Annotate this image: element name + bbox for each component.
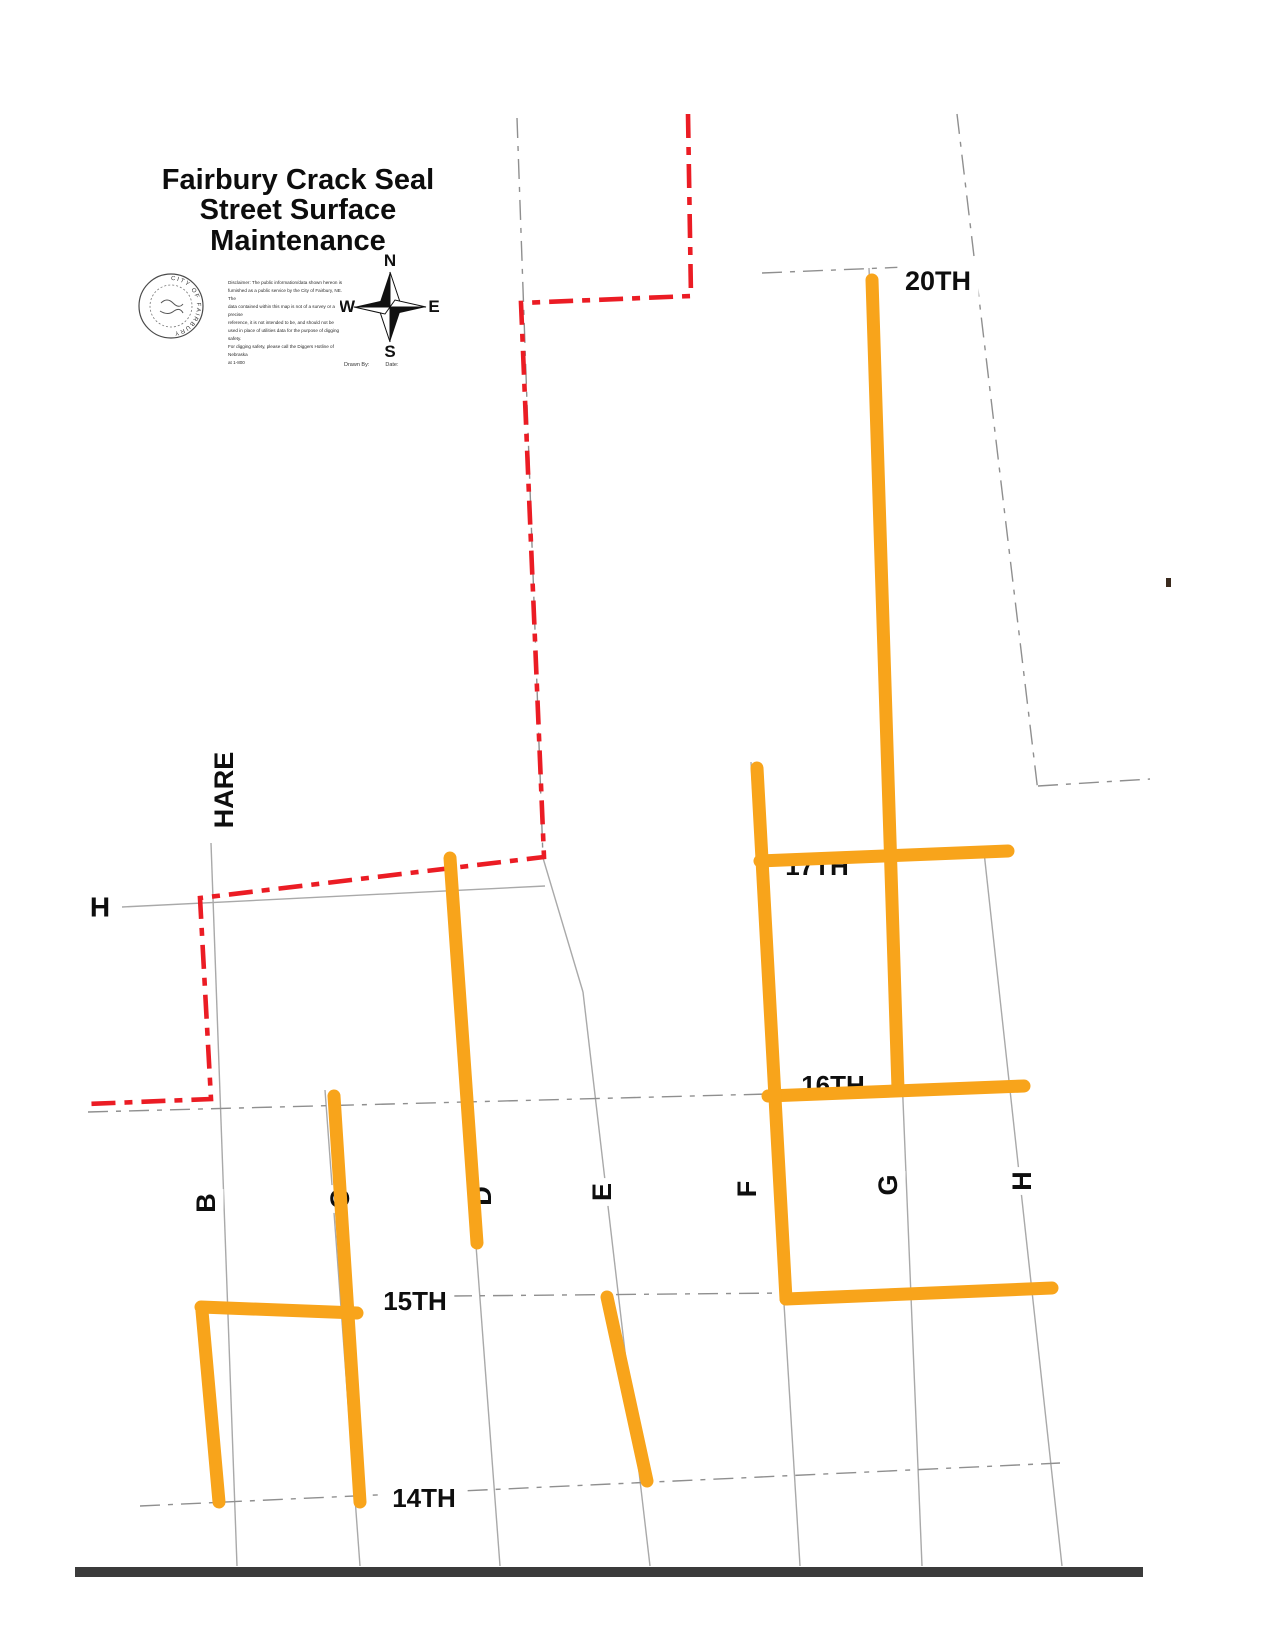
street-label-h-east: H bbox=[1007, 1171, 1037, 1191]
map-title-line1: Fairbury Crack Seal bbox=[128, 165, 468, 195]
street-label-e: E bbox=[587, 1183, 617, 1201]
date-label: Date: bbox=[385, 362, 398, 368]
street-label-b: B bbox=[191, 1193, 221, 1213]
street-line-14th-row bbox=[140, 1463, 1060, 1506]
disclaimer-line: furnished as a public service by the Cit… bbox=[228, 287, 348, 303]
drawn-by-label: Drawn By: bbox=[344, 362, 369, 368]
disclaimer-line: at 1-800 bbox=[228, 359, 348, 367]
street-label-h-west: H bbox=[90, 892, 110, 923]
disclaimer-line: For digging safety, please call the Digg… bbox=[228, 343, 348, 359]
crack-seal-segment-b-street-15th-to-14th bbox=[202, 1311, 219, 1502]
street-line-h-column bbox=[984, 852, 1062, 1566]
seal-emblem-scribble bbox=[160, 300, 183, 314]
map-title-line2: Street Surface Maintenance bbox=[128, 195, 468, 256]
street-label-f: F bbox=[732, 1181, 762, 1198]
crack-seal-segment-15th-street-b-to-c bbox=[201, 1307, 357, 1313]
stray-mark bbox=[1166, 578, 1171, 587]
street-label-14th: 14TH bbox=[392, 1483, 456, 1513]
street-label-20th: 20TH bbox=[905, 266, 971, 296]
street-line-h-street-row bbox=[122, 886, 545, 907]
disclaimer-line: Disclaimer: The public information/data … bbox=[228, 279, 348, 287]
street-line-e-column-bend bbox=[543, 858, 583, 992]
compass-s-label: S bbox=[384, 342, 395, 360]
compass-n-label: N bbox=[384, 251, 396, 270]
page-edge-bar bbox=[75, 1567, 1143, 1577]
disclaimer-line: reference, it is not intended to be, and… bbox=[228, 319, 348, 327]
street-label-hare: HARE bbox=[209, 752, 239, 829]
disclaimer-line: data contained within this map is not of… bbox=[228, 303, 348, 319]
crack-seal-segment-f-street-17th-to-15th bbox=[757, 768, 786, 1299]
compass-w-label: W bbox=[340, 297, 356, 316]
crack-seal-segment-c-street-16th-to-14th bbox=[334, 1096, 360, 1502]
drawn-by-line: Drawn By: Date: bbox=[344, 362, 484, 368]
street-line-16th-row-west bbox=[88, 1094, 768, 1112]
crack-seal-segment-e-street-15th-to-14th bbox=[607, 1297, 647, 1481]
crack-seal-segment-d-street-h-to-15th bbox=[450, 858, 477, 1243]
city-seal-logo: CITY OF FAIRBURY bbox=[135, 269, 207, 343]
street-label-g: G bbox=[873, 1174, 903, 1195]
disclaimer-text: Disclaimer: The public information/data … bbox=[228, 279, 348, 367]
street-label-15th: 15TH bbox=[383, 1286, 447, 1316]
street-line-northeast-column bbox=[957, 114, 1038, 792]
street-line-e-column-south bbox=[583, 992, 650, 1566]
map-title: Fairbury Crack Seal Street Surface Maint… bbox=[128, 165, 468, 256]
street-line-east-spur-row bbox=[1038, 779, 1150, 786]
disclaimer-line: used in place of utilities data for the … bbox=[228, 327, 348, 343]
compass-e-label: E bbox=[428, 297, 439, 316]
compass-rose-icon: N S W E bbox=[340, 250, 450, 360]
crack-seal-segment-g-street-20th-to-16th bbox=[872, 280, 898, 1089]
crack-seal-segment-15th-street-f-to-h bbox=[786, 1288, 1052, 1299]
